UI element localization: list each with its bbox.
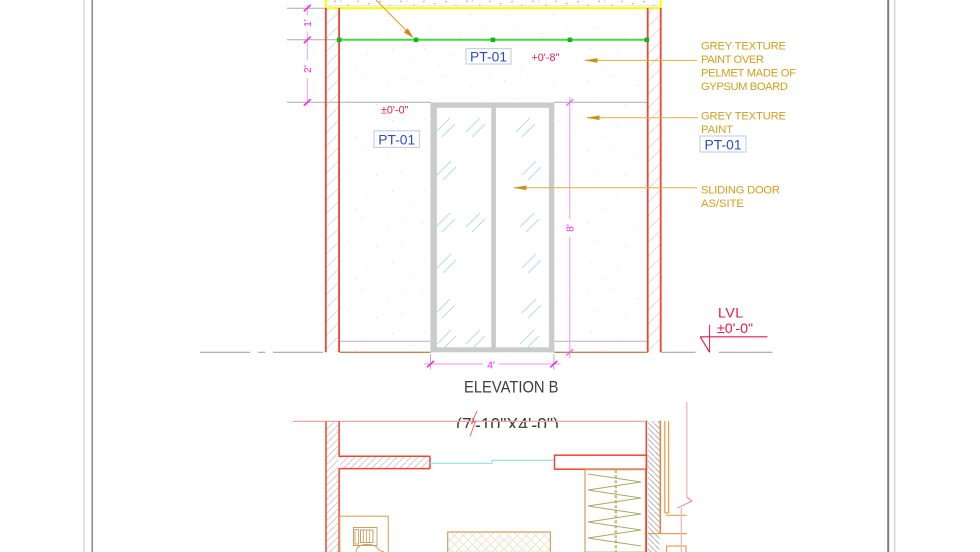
svg-text:GYPSUM BOARD: GYPSUM BOARD <box>701 81 788 93</box>
svg-text:AS/SITE: AS/SITE <box>701 198 744 210</box>
svg-text:±0'-0": ±0'-0" <box>717 321 753 337</box>
svg-text:±0'-0": ±0'-0" <box>381 104 409 116</box>
svg-text:4': 4' <box>487 360 495 372</box>
svg-text:PELMET MADE OF: PELMET MADE OF <box>701 67 796 79</box>
svg-text:PT-01: PT-01 <box>470 49 507 64</box>
svg-text:ELEVATION B: ELEVATION B <box>464 377 559 396</box>
svg-text:8': 8' <box>564 224 576 232</box>
svg-text:+0'-8": +0'-8" <box>532 52 560 64</box>
svg-text:LVL: LVL <box>718 306 744 322</box>
svg-text:GREY TEXTURE: GREY TEXTURE <box>701 40 786 52</box>
svg-text:SLIDING DOOR: SLIDING DOOR <box>701 184 780 196</box>
svg-text:PT-01: PT-01 <box>378 133 415 148</box>
svg-text:PAINT: PAINT <box>701 124 733 136</box>
svg-text:GREY TEXTURE: GREY TEXTURE <box>701 111 786 123</box>
svg-text:1': 1' <box>302 19 314 27</box>
svg-text:PT-01: PT-01 <box>705 137 742 152</box>
svg-text:PAINT OVER: PAINT OVER <box>701 54 764 66</box>
svg-text:2': 2' <box>302 65 314 73</box>
